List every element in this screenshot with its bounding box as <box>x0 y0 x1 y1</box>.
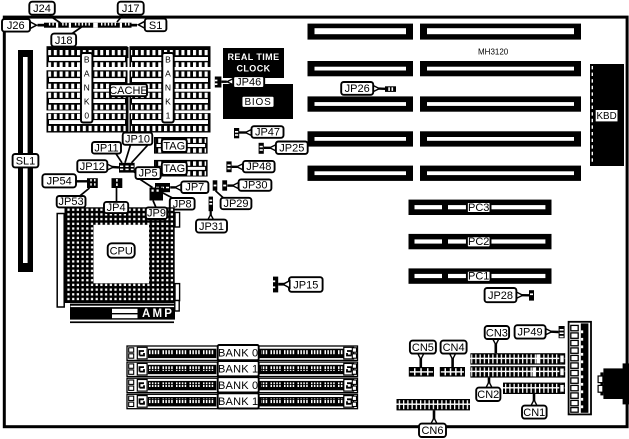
svg-text:B: B <box>84 54 90 64</box>
svg-text:B: B <box>165 54 171 64</box>
svg-text:JP9: JP9 <box>147 208 166 220</box>
svg-text:KBD: KBD <box>597 111 617 122</box>
svg-text:JP30: JP30 <box>242 180 267 192</box>
svg-text:CN5: CN5 <box>412 342 434 354</box>
svg-text:K: K <box>165 96 171 106</box>
svg-text:BIOS: BIOS <box>244 97 271 108</box>
svg-text:A: A <box>165 68 171 78</box>
svg-text:BANK 0: BANK 0 <box>218 348 258 360</box>
svg-text:K: K <box>84 96 90 106</box>
svg-text:JP54: JP54 <box>47 176 72 188</box>
svg-text:J26: J26 <box>7 20 25 32</box>
svg-text:JP7: JP7 <box>185 182 204 194</box>
svg-text:SL1: SL1 <box>16 156 36 168</box>
svg-text:CN3: CN3 <box>486 327 508 339</box>
svg-text:CN6: CN6 <box>421 425 443 437</box>
svg-text:JP15: JP15 <box>293 280 318 292</box>
svg-text:JP12: JP12 <box>80 161 105 173</box>
svg-text:JP46: JP46 <box>236 77 261 89</box>
svg-text:JP47: JP47 <box>255 127 280 139</box>
svg-text:TAG: TAG <box>163 140 185 152</box>
svg-text:CACHE: CACHE <box>109 85 148 97</box>
svg-text:N: N <box>84 82 90 92</box>
svg-text:JP53: JP53 <box>59 196 84 208</box>
svg-text:REAL TIME: REAL TIME <box>228 52 280 62</box>
svg-text:1: 1 <box>166 110 171 120</box>
svg-text:JP31: JP31 <box>199 221 224 233</box>
svg-text:BANK 0: BANK 0 <box>218 380 258 392</box>
svg-text:N: N <box>165 82 171 92</box>
svg-text:TAG: TAG <box>163 163 185 175</box>
svg-text:CN2: CN2 <box>477 389 499 401</box>
svg-text:JP5: JP5 <box>139 168 158 180</box>
svg-text:JP4: JP4 <box>107 202 126 214</box>
svg-text:JP29: JP29 <box>223 198 248 210</box>
svg-text:CPU: CPU <box>110 246 133 258</box>
svg-text:BANK 1: BANK 1 <box>218 396 258 408</box>
svg-text:JP49: JP49 <box>518 327 543 339</box>
svg-text:AMP: AMP <box>142 308 174 320</box>
svg-text:CN4: CN4 <box>443 342 465 354</box>
svg-text:PC3: PC3 <box>468 202 489 214</box>
svg-text:JP25: JP25 <box>279 142 304 154</box>
svg-text:JP26: JP26 <box>345 83 370 95</box>
svg-text:PC2: PC2 <box>468 236 489 248</box>
svg-text:JP10: JP10 <box>125 133 150 145</box>
svg-text:JP8: JP8 <box>173 198 192 210</box>
svg-text:JP11: JP11 <box>94 142 118 154</box>
svg-text:S1: S1 <box>149 20 162 32</box>
svg-text:J18: J18 <box>55 35 73 47</box>
svg-text:J17: J17 <box>122 3 140 15</box>
svg-text:PC1: PC1 <box>468 271 489 283</box>
svg-text:MH3120: MH3120 <box>478 48 509 57</box>
svg-text:A: A <box>84 68 90 78</box>
svg-text:JP28: JP28 <box>488 290 513 302</box>
svg-text:JP48: JP48 <box>246 161 271 173</box>
svg-text:0: 0 <box>84 110 89 120</box>
svg-text:J24: J24 <box>33 3 51 15</box>
svg-text:CN1: CN1 <box>523 407 545 419</box>
svg-text:CLOCK: CLOCK <box>237 64 271 74</box>
svg-text:BANK 1: BANK 1 <box>218 364 258 376</box>
